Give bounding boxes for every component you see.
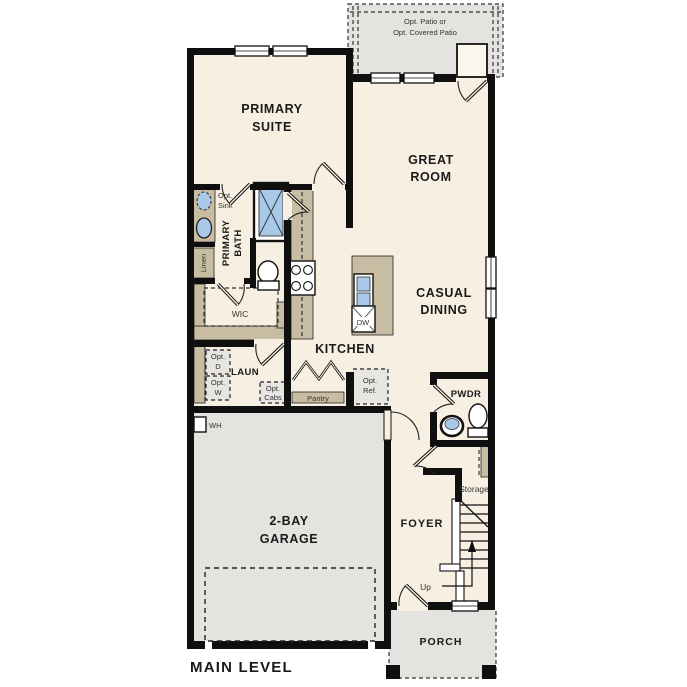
opt-cabs-label-line1: Opt. [266, 384, 280, 393]
laundry-opt-counter [194, 346, 205, 403]
water-heater [194, 417, 206, 432]
patio-label-line1: Opt. Patio or [404, 17, 447, 26]
window-icon [273, 46, 307, 56]
pantry-label: Pantry [307, 394, 329, 403]
sink-icon [197, 218, 212, 238]
casual-dining-label-line2: DINING [420, 303, 467, 317]
island-sink [354, 274, 373, 309]
garage-label-line1: 2-BAY [269, 514, 308, 528]
pwdr-label: PWDR [451, 389, 482, 400]
window-icon [371, 73, 400, 83]
foyer-label: FOYER [401, 518, 444, 530]
dishwasher-label: DW [357, 318, 370, 327]
window-icon [404, 73, 434, 83]
primary-bath-label-line2: BATH [233, 229, 244, 256]
porch-label: PORCH [420, 636, 463, 648]
pwdr-sink [441, 416, 463, 436]
plan-title: MAIN LEVEL [190, 659, 293, 676]
opt-ref-label-line2: Ref. [363, 386, 377, 395]
up-label: Up [420, 582, 431, 592]
window-icon [452, 601, 478, 611]
opt-sink-label-line2: Sink [218, 201, 233, 210]
primary-suite-label-line1: PRIMARY [241, 102, 302, 116]
window-icon [486, 257, 496, 288]
window-icon [486, 289, 496, 318]
bath-toilet [258, 261, 279, 290]
shower [254, 183, 288, 241]
opt-dryer-label-line1: Opt. [211, 352, 225, 361]
stove [289, 261, 315, 295]
optional-sink-icon [197, 192, 211, 210]
floor-plan-drawing: Opt. Patio or Opt. Covered Patio PRIMARY… [0, 0, 687, 687]
casual-dining-label-line1: CASUAL [416, 286, 472, 300]
floor-plan-canvas: Opt. Patio or Opt. Covered Patio PRIMARY… [0, 0, 687, 687]
garage-label-line2: GARAGE [260, 532, 318, 546]
porch-post-right [482, 665, 496, 679]
pwdr-toilet [468, 404, 488, 437]
water-heater-label: WH [209, 421, 222, 430]
opt-washer-label-line1: Opt. [211, 378, 225, 387]
opt-dryer-label-line2: D [215, 362, 221, 371]
laundry-label: LAUN [231, 367, 259, 378]
primary-bath-label-line1: PRIMARY [221, 220, 232, 267]
wic-label: WIC [232, 309, 249, 319]
kitchen-label: KITCHEN [315, 342, 375, 356]
primary-suite-label-line2: SUITE [252, 120, 292, 134]
opt-washer-label-line2: W [214, 388, 222, 397]
opt-sink-label-line1: Opt. [218, 191, 232, 200]
storage-label: Storage [459, 484, 489, 494]
window-icon [235, 46, 269, 56]
patio-label-line2: Opt. Covered Patio [393, 28, 457, 37]
great-room-label-line2: ROOM [410, 170, 451, 184]
great-room-label-line1: GREAT [408, 153, 454, 167]
porch-post-left [386, 665, 400, 679]
opt-ref-label-line1: Opt. [363, 376, 377, 385]
linen-label: Linen [199, 254, 208, 272]
opt-cabs-label-line2: Cabs [264, 393, 282, 402]
